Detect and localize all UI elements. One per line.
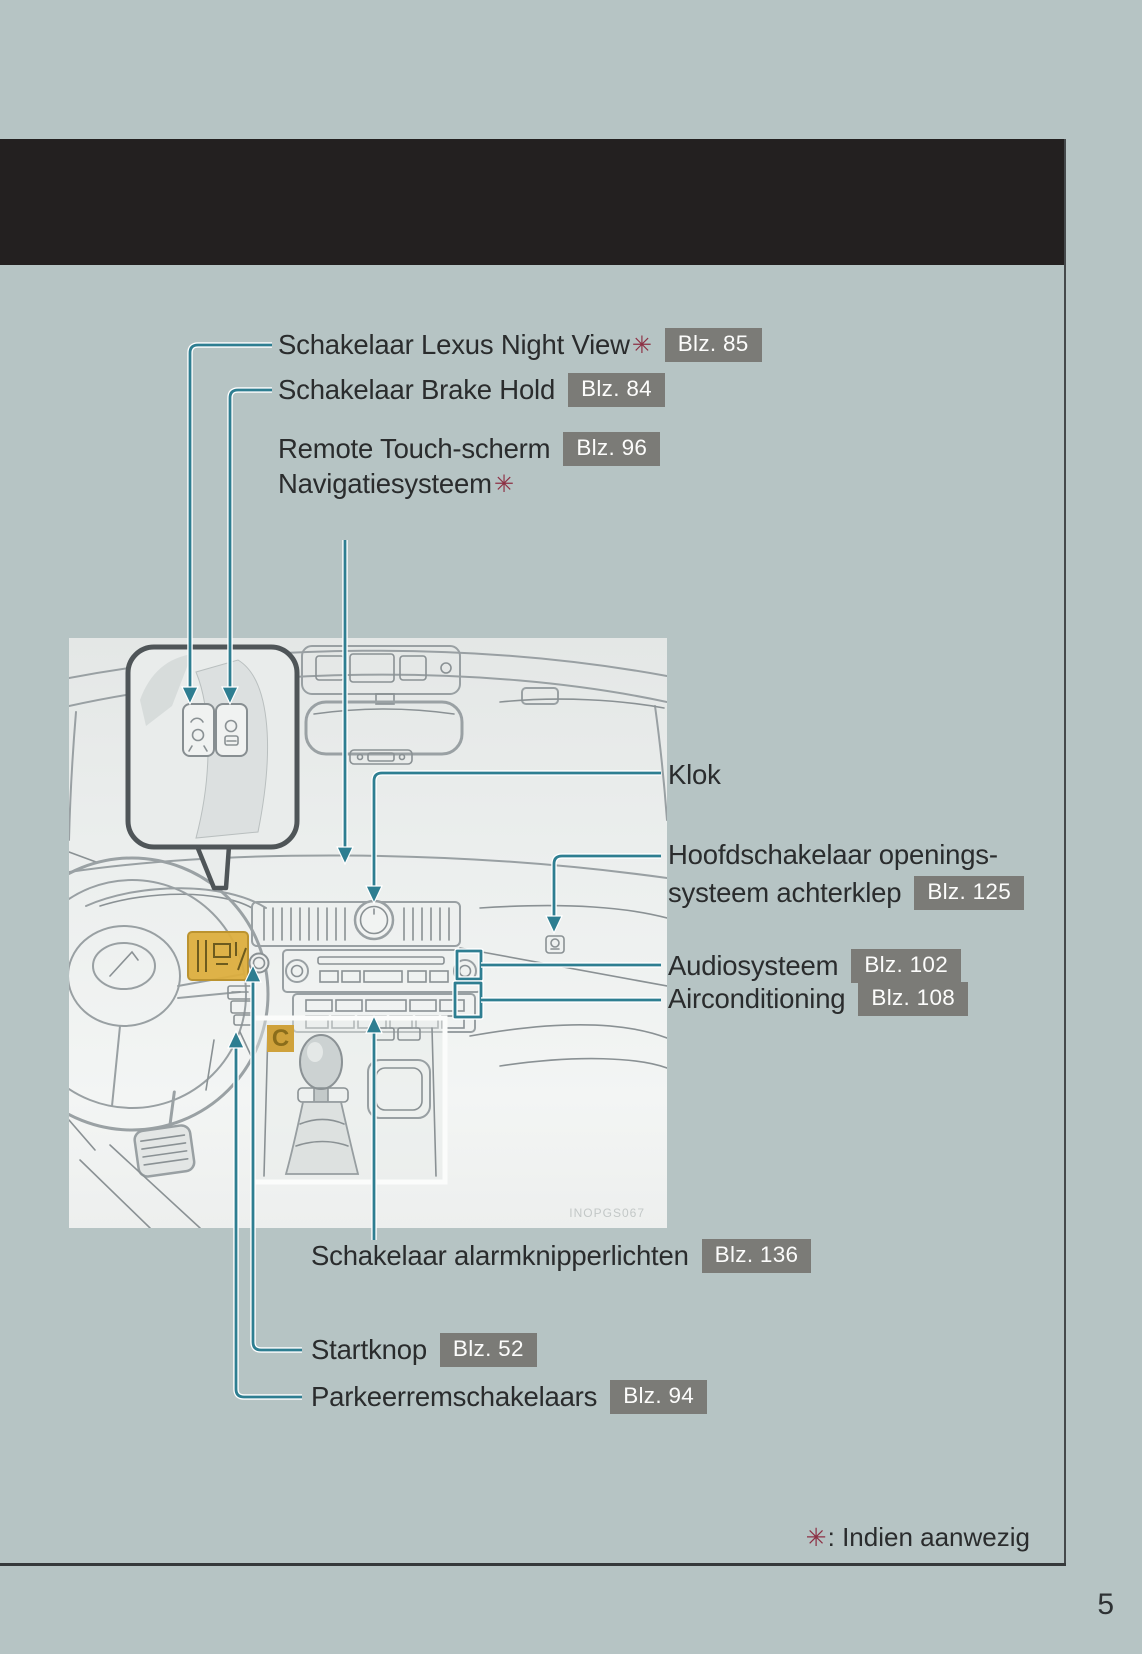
callout-navigation-system: Navigatiesysteem✳ — [278, 464, 514, 504]
callout-parking-brake-label: Parkeerremschakelaars — [311, 1381, 597, 1413]
callout-parking-brake: Parkeerremschakelaars Blz. 94 — [311, 1377, 707, 1417]
night-view-switch — [183, 704, 214, 756]
callout-tailgate-line1: Hoofdschakelaar openings- — [668, 835, 998, 875]
page-ref-badge: Blz. 52 — [440, 1333, 537, 1368]
callout-remote-touch: Remote Touch-scherm Blz. 96 — [278, 429, 660, 469]
console-inset-box: C — [253, 1018, 445, 1182]
callout-tailgate-label-line1: Hoofdschakelaar openings- — [668, 839, 998, 871]
page-ref-badge: Blz. 136 — [702, 1239, 812, 1274]
callout-clock: Klok — [668, 755, 721, 795]
page-ref-badge: Blz. 94 — [610, 1380, 707, 1415]
clock-dial — [355, 901, 393, 939]
callout-night-view-label: Schakelaar Lexus Night View — [278, 329, 630, 361]
footnote-if-equipped: ✳: Indien aanwezig — [806, 1519, 1030, 1555]
page-ref-badge: Blz. 85 — [665, 328, 762, 363]
footnote-text: : Indien aanwezig — [828, 1522, 1030, 1553]
inset-marker-letter: C — [272, 1025, 289, 1052]
asterisk-mark: ✳ — [806, 1525, 827, 1550]
page-ref-badge: Blz. 84 — [568, 373, 665, 408]
brake-hold-switch — [216, 704, 247, 756]
page-ref-badge: Blz. 108 — [858, 982, 968, 1017]
callout-start-button: Startknop Blz. 52 — [311, 1330, 537, 1370]
callout-hazard-switch: Schakelaar alarmknipperlichten Blz. 136 — [311, 1236, 811, 1276]
callout-tailgate-line2: systeem achterklep Blz. 125 — [668, 873, 1024, 913]
illustration-watermark: INOPGS067 — [569, 1206, 645, 1220]
page-ref-badge: Blz. 125 — [914, 876, 1024, 911]
callout-tailgate-label-line2: systeem achterklep — [668, 877, 901, 909]
page-number: 5 — [1097, 1588, 1114, 1622]
asterisk-mark: ✳ — [494, 472, 514, 496]
callout-remote-touch-label: Remote Touch-scherm — [278, 433, 550, 465]
instrument-switch-panel-highlight — [188, 932, 248, 980]
callout-navigation-system-label: Navigatiesysteem — [278, 468, 492, 500]
callout-audio-system-label: Audiosysteem — [668, 950, 838, 982]
page-ref-badge: Blz. 96 — [563, 432, 660, 467]
callout-airconditioning: Airconditioning Blz. 108 — [668, 979, 968, 1019]
callout-night-view: Schakelaar Lexus Night View✳ Blz. 85 — [278, 325, 762, 365]
callout-brake-hold-label: Schakelaar Brake Hold — [278, 374, 555, 406]
callout-clock-label: Klok — [668, 759, 721, 791]
callout-airconditioning-label: Airconditioning — [668, 983, 845, 1015]
callout-brake-hold: Schakelaar Brake Hold Blz. 84 — [278, 370, 665, 410]
asterisk-mark: ✳ — [632, 333, 652, 357]
callout-hazard-switch-label: Schakelaar alarmknipperlichten — [311, 1240, 689, 1272]
callout-start-button-label: Startknop — [311, 1334, 427, 1366]
